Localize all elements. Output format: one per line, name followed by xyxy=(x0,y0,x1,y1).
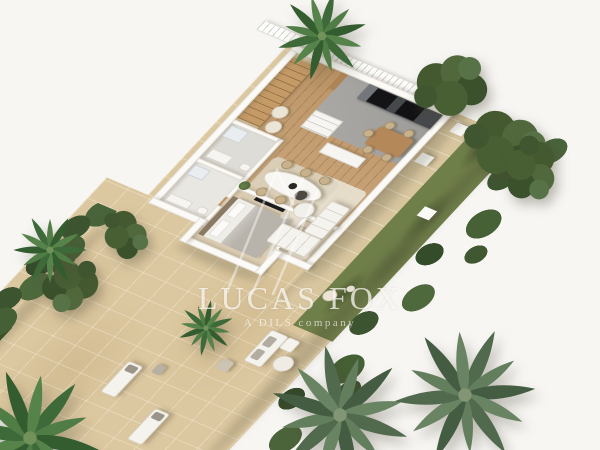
watermark-title: LUCAS FOX xyxy=(0,280,600,317)
floor-plan-render: LUCAS FOX A DILS company xyxy=(0,0,600,450)
tree-cluster xyxy=(492,132,568,208)
palm-tree xyxy=(390,320,540,450)
watermark-subtitle: A DILS company xyxy=(0,317,600,329)
palm-tree xyxy=(0,363,105,450)
palm-tree xyxy=(274,0,370,84)
palm-tree xyxy=(11,211,89,289)
brand-monogram xyxy=(205,152,335,298)
